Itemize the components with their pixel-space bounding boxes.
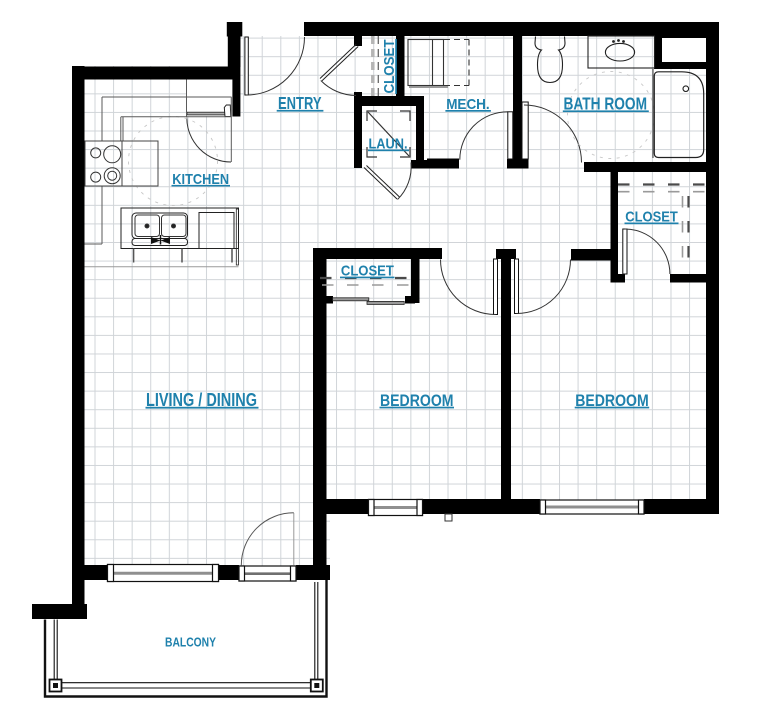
svg-text:BALCONY: BALCONY bbox=[165, 635, 216, 650]
